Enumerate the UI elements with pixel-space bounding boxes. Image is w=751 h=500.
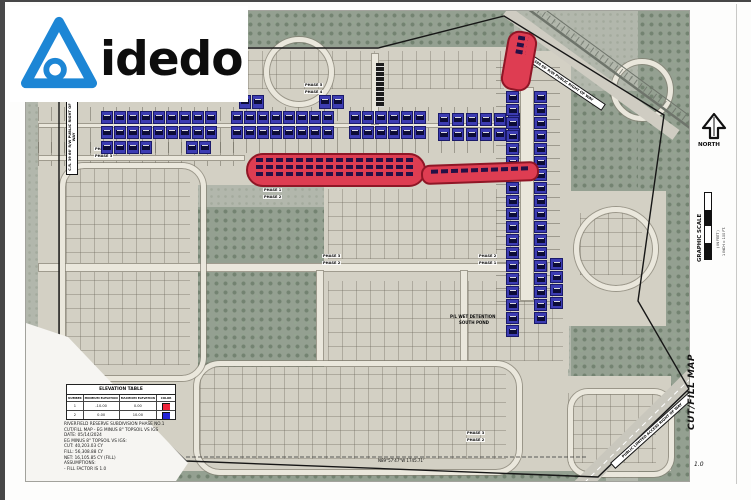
lot-value-chip [321,99,329,104]
cut-lot-blue [401,111,413,124]
logo-a-mark-icon [20,14,98,94]
phase-label: PHASE 2 [263,195,282,199]
page-number: 1.0 [694,461,704,468]
lot-value-chip [509,264,517,269]
graphic-scale-bar [704,192,712,260]
lot-value-chip [285,115,293,120]
cut-lot-blue [127,126,139,139]
lot-value-chip [537,186,545,191]
cut-lot-blue [179,111,191,124]
cut-lot-blue [506,260,519,272]
lot-value-chip [509,277,517,282]
lot-value-chip [168,130,176,135]
cut-lot-blue [414,111,426,124]
sheet-edge-line [736,4,737,484]
phase-label: PHASE 4 [304,90,323,94]
north-arrow-icon [701,112,727,140]
lot-value-chip [324,115,332,120]
lot-value-chip [537,147,545,152]
lot-value-chip [403,115,411,120]
cut-lot-blue [534,299,547,311]
cut-lot-blue [319,95,331,109]
lot-value-chip [194,130,202,135]
lot-value-chip [509,251,517,256]
cut-lot-blue [127,111,139,124]
lot-value-chip [194,115,202,120]
pond-value-chips [431,166,529,173]
lot-value-chip [509,225,517,230]
elevation-table-title: ELEVATION TABLE [67,385,175,395]
cut-lot-blue [480,113,492,126]
lot-value-chip [509,290,517,295]
cut-lot-blue [494,128,506,141]
lot-value-chip [509,108,517,113]
roadbox-label: C.R. 39 66' R/W PUBLIC RIGHT OF WAY [66,99,78,175]
phase-label: PHASE 3 [322,254,341,258]
lot-value-chip [142,115,150,120]
cut-lot-blue [534,104,547,116]
lot-value-chip [285,130,293,135]
cut-lot-blue [506,91,519,103]
cut-lot-blue [231,111,243,124]
lot-value-chip [155,130,163,135]
lot-value-chip [207,115,215,120]
logo: idedo [10,6,248,102]
lot-value-chip [509,238,517,243]
lot-value-chip [553,288,561,293]
cut-lot-blue [506,234,519,246]
pond-value-chips [256,172,416,176]
lot-value-chip [259,115,267,120]
cut-lot-blue [101,111,113,124]
lot-value-chip [311,115,319,120]
lot-value-chip [298,115,306,120]
cut-lot-blue [309,126,321,139]
lot-value-chip [246,115,254,120]
lot-value-chip [129,145,137,150]
lot-value-chip [509,303,517,308]
pond-value-chips [517,42,528,48]
cut-lot-blue [283,126,295,139]
lot-value-chip [259,130,267,135]
cut-lot-blue [550,297,563,309]
cut-lot-blue [270,126,282,139]
cut-lot-blue [550,271,563,283]
cut-lot-blue [257,111,269,124]
lot-value-chip [155,115,163,120]
cut-lot-blue [192,111,204,124]
cut-lot-blue [550,284,563,296]
lot-value-chip [364,115,372,120]
lot-value-chip [537,290,545,295]
lot-value-chip [537,316,545,321]
lot-value-chip [142,130,150,135]
phase-label: PHASE 3 [466,431,485,435]
cut-lot-blue [388,111,400,124]
notes-block: RIVERFIELD RESERVE SUBDIVISION PHASE NO.… [64,421,204,471]
cut-lot-blue [452,128,464,141]
elevation-table-header: NUMBER MINIMUM ELEVATION MAXIMUM ELEVATI… [67,395,175,402]
cut-lot-blue [296,126,308,139]
cut-lot-blue [506,117,519,129]
cut-lot-blue [506,130,519,142]
lot-value-chip [142,145,150,150]
lot-value-chip [246,130,254,135]
lot-value-chip [537,95,545,100]
lot-value-chip [537,121,545,126]
cut-lot-blue [375,126,387,139]
cut-lot-blue [205,126,217,139]
lot-value-chip [537,277,545,282]
cut-lot-blue [534,195,547,207]
cut-lot-blue [534,91,547,103]
plain-label: P/L WET DETENTION [450,315,510,320]
lot-value-chip [509,95,517,100]
lot-value-chip [454,132,462,137]
cut-lot-blue [506,312,519,324]
logo-wordmark: idedo [100,32,243,87]
north-label: NORTH [698,142,720,148]
cut-lot-blue [506,273,519,285]
phase-label: PHASE 2 [322,261,341,265]
lot-value-chip [334,99,342,104]
lot-value-chip [537,238,545,243]
phase-label: PHASE 3 [94,154,113,158]
lot-value-chip [537,264,545,269]
cut-lot-blue [534,273,547,285]
cut-lot-blue [231,126,243,139]
lot-value-chip [537,134,545,139]
lot-value-chip [272,115,280,120]
lot-value-chip [103,145,111,150]
lot-value-chip [509,121,517,126]
cut-lot-blue [388,126,400,139]
graphic-scale-title: GRAPHIC SCALE [697,214,703,262]
cut-lot-blue [506,143,519,155]
lot-value-chip [537,108,545,113]
cut-lot-blue [166,111,178,124]
lot-value-chip [298,130,306,135]
cut-lot-blue [153,126,165,139]
cut-lot-blue [114,111,126,124]
lot-value-chip [377,130,385,135]
cut-lot-blue [101,126,113,139]
cut-lot-blue [322,126,334,139]
cut-lot-blue [252,95,264,109]
lot-value-chip [454,117,462,122]
lot-value-chip [201,145,209,150]
lot-value-chip [129,115,137,120]
lot-value-chip [129,130,137,135]
lot-value-chip [553,275,561,280]
lot-value-chip [272,130,280,135]
lot-value-chip [482,132,490,137]
cut-lot-blue [205,111,217,124]
cut-lot-blue [534,234,547,246]
pond-value-chips [256,165,416,169]
cut-lot-blue [438,113,450,126]
lot-value-chip [351,115,359,120]
lot-value-chip [537,199,545,204]
cut-lot-blue [349,126,361,139]
highway-road [578,373,689,481]
cut-lot-blue [534,286,547,298]
lot-value-chip [509,147,517,152]
lot-value-chip [116,145,124,150]
cut-lot-blue [466,128,478,141]
lot-value-chip [537,225,545,230]
cut-lot-blue [296,111,308,124]
cut-lot-blue [101,141,113,154]
lot-value-chip [496,117,504,122]
cut-lot-blue [506,182,519,194]
graphic-scale-units: ( IN FEET ) [716,230,720,248]
cut-lot-blue [506,104,519,116]
phase-label: PHASE 1 [478,261,497,265]
pond-value-chips [518,36,529,42]
scanned-plan-sheet: C.R. 39 66' R/W PUBLIC RIGHT OF WAYC.R. … [0,0,751,500]
lot-value-chip [468,132,476,137]
cut-lot-blue [438,128,450,141]
cut-lot-blue [114,141,126,154]
lot-value-chip [181,115,189,120]
lot-value-chip [233,115,241,120]
cut-lot-blue [550,258,563,270]
pond-value-chips [515,49,526,55]
lot-value-chip [103,130,111,135]
cut-lot-blue [494,113,506,126]
phase-label: PHASE 5 [304,83,323,87]
cut-lot-blue [140,141,152,154]
elevation-table-row: 1 -10.00 0.00 [67,402,175,411]
lot-value-chip [233,130,241,135]
phase-label: PHASE 2 [478,254,497,258]
cut-lot-blue [332,95,344,109]
fill-zone-red [421,161,540,185]
lot-value-chip [351,130,359,135]
cut-lot-blue [199,141,211,154]
lot-value-chip [537,251,545,256]
lot-value-chip [116,115,124,120]
elevation-table-row: 2 0.00 10.00 [67,411,175,419]
cut-lot-blue [506,286,519,298]
cut-lot-blue [283,111,295,124]
cut-lot-blue [140,126,152,139]
cut-lot-blue [127,141,139,154]
cut-lot-blue [506,299,519,311]
elevation-table: ELEVATION TABLE NUMBER MINIMUM ELEVATION… [66,384,176,420]
cut-lot-blue [534,143,547,155]
lot-value-chip [440,117,448,122]
cut-lot-blue [506,325,519,337]
cut-lot-blue [534,117,547,129]
cut-lot-blue [466,113,478,126]
phase-label: PHASE 2 [466,438,485,442]
lot-value-chip [553,301,561,306]
lot-value-chip [207,130,215,135]
cut-lot-blue [179,126,191,139]
lot-value-chip [509,199,517,204]
lot-value-chip [390,130,398,135]
cut-lot-blue [349,111,361,124]
lot-value-chip [103,115,111,120]
cut-lot-blue [192,126,204,139]
cut-lot-blue [244,126,256,139]
cut-lot-blue [362,111,374,124]
graphic-scale-caption: 1 INCH = 100 FT. [722,227,726,256]
cut-lot-blue [534,260,547,272]
lot-value-chip [537,303,545,308]
cut-lot-blue [401,126,413,139]
fill-zone-red [246,153,426,187]
lot-value-chip [509,212,517,217]
sheet-title: CUT/FILL MAP [687,354,697,430]
lot-value-chip [254,99,262,104]
lot-value-chip [537,212,545,217]
lot-value-chip [440,132,448,137]
scan-edge [0,0,5,500]
cut-lot-blue [534,221,547,233]
cut-lot-blue [534,208,547,220]
cut-lot-blue [480,128,492,141]
cut-lot-blue [534,312,547,324]
cut-lot-blue [114,126,126,139]
lot-value-chip [537,160,545,165]
lot-value-chip [364,130,372,135]
cut-lot-blue [153,111,165,124]
cut-lot-blue [375,111,387,124]
lot-value-chip [324,130,332,135]
cut-lot-blue [506,247,519,259]
lot-value-chip [496,132,504,137]
cut-lot-blue [244,111,256,124]
lot-value-chip [509,186,517,191]
scan-edge [0,0,751,2]
cut-lot-blue [186,141,198,154]
cut-lot-blue [506,208,519,220]
lot-value-chip [403,130,411,135]
lot-value-chip [188,145,196,150]
lot-value-chip [181,130,189,135]
cut-lot-blue [534,182,547,194]
lot-value-chip [116,130,124,135]
lot-value-chip [311,130,319,135]
cut-lot-blue [506,195,519,207]
lot-value-chip [482,117,490,122]
lot-value-chip [168,115,176,120]
cut-lot-blue [270,111,282,124]
lot-value-chip [416,115,424,120]
lot-value-chip [509,134,517,139]
lot-value-chip [390,115,398,120]
cut-lot-blue [309,111,321,124]
lot-value-chip [468,117,476,122]
cut-lot-blue [257,126,269,139]
cut-lot-blue [140,111,152,124]
lot-value-chip [416,130,424,135]
lot-value-chip [509,316,517,321]
cut-lot-blue [506,221,519,233]
cut-lot-blue [362,126,374,139]
note-line: - FILL FACTOR IS 1.0 [64,466,204,472]
cut-lot-blue [322,111,334,124]
dim-label: N89°57'47"W 1745.71' [378,459,424,464]
pond-value-chips [256,158,416,162]
cut-lot-blue [534,130,547,142]
cut-color-swatch [162,412,170,419]
cut-lot-blue [534,247,547,259]
lot-value-chip [509,329,517,334]
cut-lot-blue [452,113,464,126]
fill-color-swatch [162,403,170,410]
lot-value-chip [377,115,385,120]
lot-value-chip [553,262,561,267]
phase-label: PHASE 1 [263,188,282,192]
cut-lot-blue [414,126,426,139]
cut-lot-blue [166,126,178,139]
